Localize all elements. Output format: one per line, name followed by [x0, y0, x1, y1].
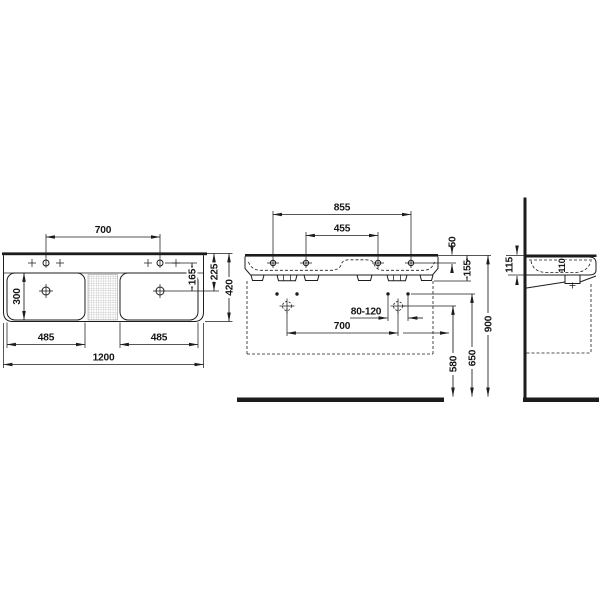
front-dim-rim-to-tap: 50 [448, 236, 459, 271]
front-fixing-screw-dots [275, 292, 409, 295]
side-wall-dashed-outline [527, 284, 592, 353]
front-dim-rim-height: 900 [483, 256, 495, 397]
front-bowl-hidden-profile [249, 260, 435, 271]
side-dim-inner-depth: 110 [557, 258, 567, 272]
plan-drain-right [153, 284, 167, 298]
front-mounting-lugs [251, 275, 433, 281]
dim-label-plan-1200: 1200 [93, 353, 115, 364]
side-underside-and-drain [527, 275, 597, 289]
front-dim-rim-to-hangers: 155 [462, 256, 474, 282]
side-wall-line [524, 198, 527, 401]
front-dim-drain-offset-range: 80-120 [345, 296, 423, 321]
plan-center-hatch-area [88, 275, 118, 321]
front-floor-line [237, 398, 444, 403]
side-floor-line [523, 398, 599, 403]
side-dim-apron-height: 115 [505, 246, 524, 285]
dim-label-plan-485-left: 485 [38, 333, 55, 344]
front-rim-edge [245, 254, 438, 257]
plan-dim-overall-width: 1200 [4, 323, 204, 368]
dim-label-front-455: 455 [334, 224, 351, 235]
dim-label-front-900: 900 [484, 315, 495, 332]
plan-tap-holes [28, 258, 180, 268]
plan-dim-basin-depth: 300 [12, 273, 24, 320]
plan-dim-basin-widths: 485 485 [7, 323, 198, 349]
side-view: 110 115 [505, 198, 600, 403]
dim-label-front-855: 855 [334, 203, 351, 214]
dim-label-front-700: 700 [334, 321, 351, 332]
dim-label-front-650: 650 [468, 349, 479, 366]
plan-rear-edge [2, 252, 207, 255]
dim-label-plan-700: 700 [95, 225, 112, 236]
front-dim-drain-height: 580 [448, 306, 460, 397]
plan-drain-left [39, 284, 53, 298]
dim-label-plan-485-right: 485 [151, 333, 168, 344]
technical-drawing-page: 700 300 485 485 1200 [0, 0, 600, 600]
dim-label-front-155: 155 [463, 260, 474, 277]
dim-label-front-50: 50 [448, 236, 459, 247]
front-wall-dashed-outline [247, 281, 433, 354]
plan-view: 700 300 485 485 1200 [2, 225, 236, 368]
dim-label-front-580: 580 [449, 355, 460, 372]
front-view: 855 455 80-120 700 [237, 203, 495, 403]
washbasin-dimension-drawing: 700 300 485 485 1200 [0, 0, 600, 600]
dim-label-plan-225: 225 [210, 263, 221, 280]
front-dim-hanger-inner: 455 [306, 224, 378, 259]
plan-basin-right [120, 273, 198, 320]
dim-label-front-80-120: 80-120 [351, 307, 382, 318]
dim-label-plan-300: 300 [12, 288, 23, 305]
dim-label-side-115: 115 [505, 257, 516, 273]
dim-label-plan-165: 165 [188, 268, 199, 285]
dim-label-side-110: 110 [557, 258, 567, 272]
front-dim-hanger-height: 650 [467, 294, 479, 397]
dim-label-plan-420: 420 [225, 279, 236, 296]
